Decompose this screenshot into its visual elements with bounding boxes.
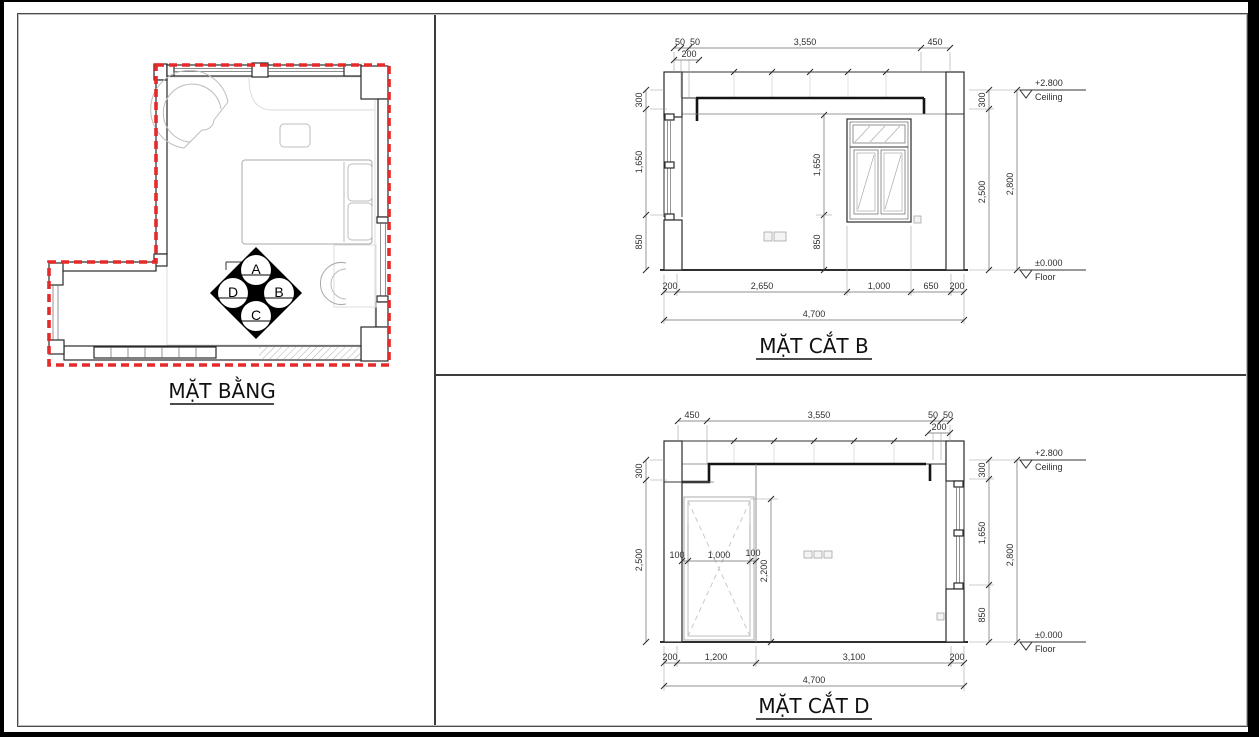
- level-label: Floor: [1035, 272, 1056, 282]
- dim-value: 100: [745, 548, 760, 558]
- bed: [242, 160, 372, 244]
- dim-value: 3,550: [808, 410, 831, 420]
- level-value: ±0.000: [1035, 258, 1062, 268]
- floor-plan-panel: A B C D MẶT BẰNG: [4, 2, 434, 737]
- secd-level-markers: +2.800 Ceiling ±0.000 Floor: [1020, 448, 1086, 654]
- dim-value: 50: [690, 37, 700, 47]
- level-value: +2.800: [1035, 78, 1063, 88]
- socket-symbol: [914, 216, 921, 223]
- panel-divider-horizontal: [434, 374, 1247, 376]
- level-label: Ceiling: [1035, 92, 1063, 102]
- socket-symbol: [774, 232, 786, 241]
- dim-value: 850: [634, 234, 644, 249]
- dim-value: 2,650: [751, 281, 774, 291]
- section-b-panel: 50 50 3,550 450 200 300 1,650 850 1,650 …: [434, 2, 1259, 375]
- level-value: +2.800: [1035, 448, 1063, 458]
- side-table: [280, 124, 310, 147]
- dim-total: 2,800: [1005, 544, 1015, 567]
- secb-window: [847, 119, 911, 222]
- plan-title-group: MẶT BẰNG: [168, 377, 275, 404]
- dim-value: 300: [634, 463, 644, 478]
- dim-value: 200: [949, 652, 964, 662]
- dim-value: 200: [949, 281, 964, 291]
- dim-value: 2,200: [759, 560, 769, 583]
- section-b-title: MẶT CẮT B: [759, 332, 868, 358]
- secd-title-group: MẶT CẮT D: [756, 692, 872, 719]
- socket-symbol: [764, 232, 772, 241]
- desk-and-chair: [320, 245, 376, 307]
- drawing-sheet: A B C D MẶT BẰNG: [4, 2, 1248, 732]
- dim-total: 2,800: [1005, 173, 1015, 196]
- dim-value: 2,500: [977, 181, 987, 204]
- dim-value: 50: [928, 410, 938, 420]
- secb-dimensions: 50 50 3,550 450 200 300 1,650 850 1,650 …: [634, 37, 1024, 324]
- dim-value: 300: [634, 92, 644, 107]
- socket-symbol: [937, 613, 944, 620]
- dim-value: 850: [977, 607, 987, 622]
- plan-title: MẶT BẰNG: [168, 377, 275, 403]
- dim-value: 850: [812, 234, 822, 249]
- dim-value: 50: [943, 410, 953, 420]
- dim-total: 4,700: [803, 675, 826, 685]
- dim-value: 3,100: [843, 652, 866, 662]
- marker-letter-a: A: [251, 261, 261, 277]
- switch-symbol: [814, 551, 822, 558]
- dim-value: 1,650: [812, 154, 822, 177]
- drawing-page: { "colors": { "boundary_red": "#e62a2a",…: [0, 0, 1259, 735]
- secd-wall-symbols: [804, 551, 944, 620]
- dim-value: 200: [681, 49, 696, 59]
- dim-value: 300: [977, 92, 987, 107]
- panel-divider-vertical: [434, 13, 436, 726]
- dim-value: 450: [684, 410, 699, 420]
- dim-value: 50: [675, 37, 685, 47]
- section-marker: A B C D: [210, 247, 302, 339]
- dim-total: 4,700: [803, 309, 826, 319]
- dim-value: 200: [662, 652, 677, 662]
- section-d-title: MẶT CẮT D: [758, 692, 869, 718]
- dim-value: 100: [669, 550, 684, 560]
- switch-symbol: [824, 551, 832, 558]
- dim-value: 200: [662, 281, 677, 291]
- marker-letter-b: B: [274, 284, 283, 300]
- secd-structure: [660, 438, 968, 642]
- dim-value: 1,000: [868, 281, 891, 291]
- marker-letter-d: D: [228, 284, 238, 300]
- section-d-panel: 450 3,550 50 50 200 300 2,500 100 1,000 …: [434, 375, 1259, 737]
- dim-value: 450: [927, 37, 942, 47]
- marker-letter-c: C: [251, 307, 261, 323]
- level-label: Floor: [1035, 644, 1056, 654]
- level-value: ±0.000: [1035, 630, 1062, 640]
- dim-value: 1,650: [977, 522, 987, 545]
- secd-dimensions: 450 3,550 50 50 200 300 2,500 100 1,000 …: [634, 410, 1024, 691]
- switch-symbol: [804, 551, 812, 558]
- dim-value: 1,000: [708, 550, 731, 560]
- plan-walls: [49, 63, 388, 361]
- secb-level-markers: +2.800 Ceiling ±0.000 Floor: [1020, 78, 1086, 282]
- dim-value: 1,200: [705, 652, 728, 662]
- level-label: Ceiling: [1035, 462, 1063, 472]
- secb-title-group: MẶT CẮT B: [756, 332, 872, 359]
- dim-value: 300: [977, 462, 987, 477]
- dim-value: 2,500: [634, 549, 644, 572]
- dim-value: 3,550: [794, 37, 817, 47]
- dim-value: 650: [923, 281, 938, 291]
- dim-value: 1,650: [634, 151, 644, 174]
- dim-value: 200: [931, 422, 946, 432]
